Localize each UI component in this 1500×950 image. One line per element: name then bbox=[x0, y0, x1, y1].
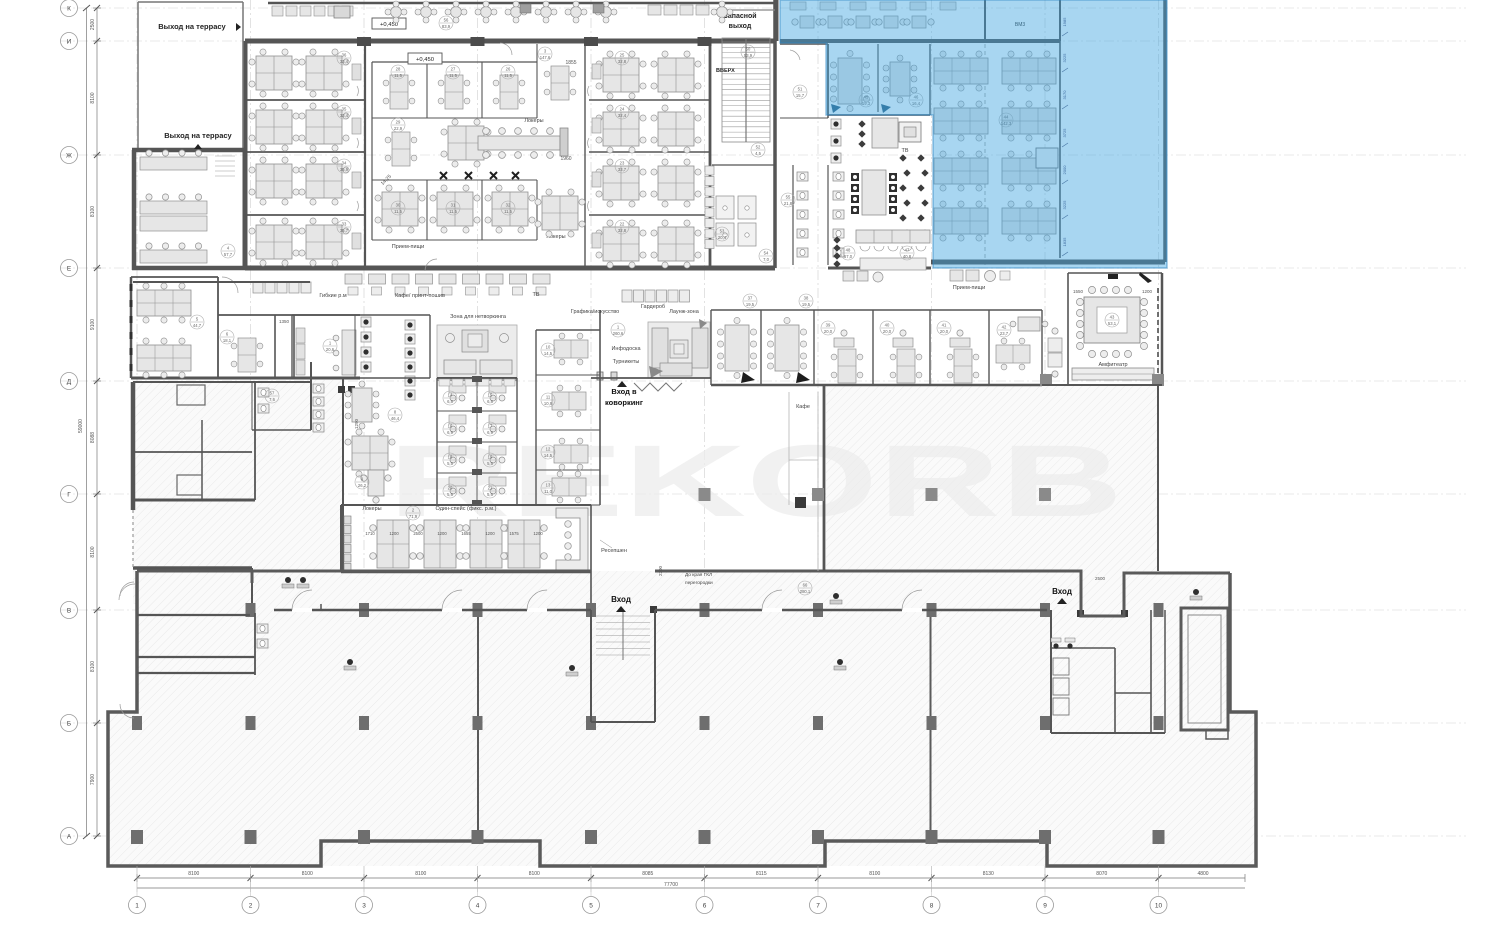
svg-text:8100: 8100 bbox=[869, 871, 880, 877]
svg-text:1550: 1550 bbox=[1073, 289, 1084, 294]
svg-text:1200: 1200 bbox=[389, 531, 399, 536]
svg-text:1200: 1200 bbox=[437, 531, 447, 536]
svg-text:40,8: 40,8 bbox=[903, 254, 912, 259]
svg-text:20,4: 20,4 bbox=[718, 235, 727, 240]
svg-text:22: 22 bbox=[620, 222, 625, 227]
svg-text:перегородки: перегородки bbox=[685, 581, 713, 586]
svg-text:8100: 8100 bbox=[90, 546, 96, 557]
svg-text:32,8: 32,8 bbox=[618, 59, 627, 64]
svg-text:5,6: 5,6 bbox=[487, 492, 493, 497]
svg-text:29: 29 bbox=[396, 120, 401, 125]
svg-text:18,1: 18,1 bbox=[223, 338, 232, 343]
svg-text:25: 25 bbox=[620, 53, 625, 58]
svg-text:Выход на террасу: Выход на террасу bbox=[158, 22, 226, 31]
svg-text:Ж: Ж bbox=[66, 153, 72, 160]
svg-text:83,9: 83,9 bbox=[442, 24, 451, 29]
svg-text:5,5: 5,5 bbox=[487, 461, 493, 466]
svg-text:К: К bbox=[67, 6, 71, 13]
svg-text:И: И bbox=[67, 39, 72, 46]
svg-text:6,9: 6,9 bbox=[447, 430, 453, 435]
svg-text:Амфитеатр: Амфитеатр bbox=[1098, 362, 1127, 368]
svg-text:57: 57 bbox=[270, 391, 275, 396]
svg-text:1200: 1200 bbox=[1142, 289, 1153, 294]
svg-text:28: 28 bbox=[396, 67, 401, 72]
svg-text:ВВЕРХ: ВВЕРХ bbox=[716, 68, 735, 74]
svg-text:10: 10 bbox=[1155, 903, 1163, 910]
svg-text:1855: 1855 bbox=[565, 60, 576, 66]
svg-text:Локеры: Локеры bbox=[524, 118, 543, 124]
svg-text:4800: 4800 bbox=[1197, 871, 1208, 877]
svg-text:17: 17 bbox=[488, 424, 493, 429]
svg-text:33,7: 33,7 bbox=[618, 167, 627, 172]
svg-text:5,6: 5,6 bbox=[447, 492, 453, 497]
svg-text:66: 66 bbox=[803, 583, 808, 588]
svg-text:26,2: 26,2 bbox=[358, 483, 367, 488]
svg-text:77700: 77700 bbox=[664, 882, 678, 888]
svg-text:147,6: 147,6 bbox=[540, 55, 551, 60]
svg-text:21,8: 21,8 bbox=[784, 201, 793, 206]
svg-text:2: 2 bbox=[249, 903, 253, 910]
svg-text:Прием-пищи: Прием-пищи bbox=[392, 244, 424, 250]
svg-text:Прием-пищи: Прием-пищи bbox=[953, 285, 985, 291]
svg-text:10,9: 10,9 bbox=[544, 401, 553, 406]
svg-text:67,0: 67,0 bbox=[844, 254, 853, 259]
svg-text:11,5: 11,5 bbox=[504, 209, 513, 214]
svg-text:6: 6 bbox=[703, 903, 707, 910]
svg-text:А: А bbox=[67, 834, 72, 841]
svg-text:22,9: 22,9 bbox=[394, 126, 403, 131]
svg-text:44,7: 44,7 bbox=[193, 323, 202, 328]
svg-text:Б: Б bbox=[67, 721, 71, 728]
svg-text:Кафе/ принт-пошив: Кафе/ принт-пошив bbox=[395, 293, 445, 299]
svg-text:До края ГКЛ: До края ГКЛ bbox=[685, 572, 712, 578]
svg-text:280,1: 280,1 bbox=[800, 589, 811, 594]
svg-text:Ресепшен: Ресепшен bbox=[601, 548, 627, 554]
svg-text:ТВ: ТВ bbox=[901, 148, 908, 154]
svg-text:Вход: Вход bbox=[1052, 587, 1072, 596]
svg-text:1200: 1200 bbox=[533, 531, 543, 536]
svg-text:19,5: 19,5 bbox=[802, 302, 811, 307]
svg-text:32,8: 32,8 bbox=[618, 228, 627, 233]
svg-text:16: 16 bbox=[448, 424, 453, 429]
svg-text:33,4: 33,4 bbox=[340, 59, 349, 64]
svg-text:42: 42 bbox=[1002, 325, 1007, 330]
svg-text:53: 53 bbox=[720, 229, 725, 234]
svg-text:Графика/искусство: Графика/искусство bbox=[571, 309, 619, 315]
svg-text:14,5: 14,5 bbox=[544, 453, 553, 458]
svg-text:21: 21 bbox=[488, 486, 493, 491]
svg-text:Г: Г bbox=[67, 492, 71, 499]
svg-text:20: 20 bbox=[448, 486, 453, 491]
svg-text:2500: 2500 bbox=[90, 19, 96, 30]
svg-text:Лаунж-зона: Лаунж-зона bbox=[669, 309, 699, 315]
svg-text:5,5: 5,5 bbox=[447, 461, 453, 466]
svg-text:24: 24 bbox=[620, 107, 625, 112]
svg-text:20,0: 20,0 bbox=[940, 329, 949, 334]
svg-text:5: 5 bbox=[589, 903, 593, 910]
svg-text:+0,450: +0,450 bbox=[416, 57, 434, 63]
svg-text:55: 55 bbox=[786, 195, 791, 200]
svg-text:39: 39 bbox=[826, 323, 831, 328]
svg-text:50: 50 bbox=[746, 47, 751, 52]
svg-text:53,9: 53,9 bbox=[744, 53, 753, 58]
svg-text:выход: выход bbox=[729, 23, 752, 30]
svg-text:43: 43 bbox=[1110, 315, 1115, 320]
svg-text:11,0: 11,0 bbox=[544, 489, 553, 494]
svg-text:19,5: 19,5 bbox=[746, 302, 755, 307]
svg-text:8100: 8100 bbox=[90, 661, 96, 672]
svg-text:1200: 1200 bbox=[485, 531, 495, 536]
svg-text:14: 14 bbox=[448, 393, 453, 398]
svg-text:8115: 8115 bbox=[756, 871, 767, 877]
svg-text:12: 12 bbox=[546, 447, 551, 452]
svg-text:7900: 7900 bbox=[90, 774, 96, 785]
svg-text:Локеры: Локеры bbox=[362, 506, 381, 512]
svg-text:3: 3 bbox=[362, 903, 366, 910]
svg-text:37: 37 bbox=[748, 296, 753, 301]
svg-text:59000: 59000 bbox=[78, 419, 84, 433]
svg-text:6,8: 6,8 bbox=[447, 399, 453, 404]
svg-text:8100: 8100 bbox=[188, 871, 199, 877]
svg-text:2500: 2500 bbox=[1095, 576, 1106, 581]
svg-text:33,4: 33,4 bbox=[340, 113, 349, 118]
svg-text:20,0: 20,0 bbox=[883, 329, 892, 334]
svg-text:32,4: 32,4 bbox=[618, 113, 627, 118]
svg-text:Вход в: Вход в bbox=[611, 387, 637, 396]
svg-text:56: 56 bbox=[444, 18, 449, 23]
svg-text:36: 36 bbox=[342, 53, 347, 58]
svg-text:11: 11 bbox=[546, 395, 551, 400]
svg-text:Зона для нетворкинга: Зона для нетворкинга bbox=[450, 314, 507, 320]
svg-text:Д: Д bbox=[67, 379, 72, 386]
svg-text:8: 8 bbox=[930, 903, 934, 910]
svg-text:6,9: 6,9 bbox=[487, 430, 493, 435]
svg-text:8088: 8088 bbox=[90, 432, 96, 443]
svg-text:9: 9 bbox=[1043, 903, 1047, 910]
svg-text:9100: 9100 bbox=[90, 319, 96, 330]
svg-text:51: 51 bbox=[798, 87, 803, 92]
svg-text:В: В bbox=[67, 608, 71, 615]
svg-text:8100: 8100 bbox=[415, 871, 426, 877]
svg-text:8085: 8085 bbox=[642, 871, 653, 877]
svg-text:34: 34 bbox=[342, 161, 347, 166]
svg-text:46,4: 46,4 bbox=[391, 416, 400, 421]
svg-text:11,5: 11,5 bbox=[449, 73, 458, 78]
svg-text:20,0: 20,0 bbox=[824, 329, 833, 334]
svg-text:27: 27 bbox=[451, 67, 456, 72]
svg-text:Турникеты: Турникеты bbox=[613, 359, 640, 365]
svg-text:Кафе: Кафе bbox=[796, 404, 810, 410]
svg-text:35: 35 bbox=[342, 107, 347, 112]
svg-text:10: 10 bbox=[546, 345, 551, 350]
svg-text:1960: 1960 bbox=[560, 156, 571, 162]
svg-text:53,1: 53,1 bbox=[1108, 321, 1117, 326]
svg-text:Вход: Вход bbox=[611, 595, 631, 604]
svg-text:13: 13 bbox=[546, 483, 551, 488]
svg-text:54: 54 bbox=[764, 251, 769, 256]
svg-text:15: 15 bbox=[488, 393, 493, 398]
svg-text:23: 23 bbox=[620, 161, 625, 166]
svg-text:8100: 8100 bbox=[90, 206, 96, 217]
svg-text:23,7: 23,7 bbox=[1000, 331, 1009, 336]
svg-text:30: 30 bbox=[396, 203, 401, 208]
svg-text:35,7: 35,7 bbox=[340, 228, 349, 233]
svg-text:48: 48 bbox=[846, 248, 851, 253]
svg-text:19: 19 bbox=[488, 455, 493, 460]
svg-text:71,9: 71,9 bbox=[409, 514, 418, 519]
svg-text:2500: 2500 bbox=[413, 531, 423, 536]
svg-text:7: 7 bbox=[816, 903, 820, 910]
svg-text:2300: 2300 bbox=[658, 565, 663, 576]
svg-text:7,6: 7,6 bbox=[269, 397, 275, 402]
svg-text:260,6: 260,6 bbox=[613, 331, 624, 336]
svg-text:26: 26 bbox=[506, 67, 511, 72]
svg-text:Инфодоска: Инфодоска bbox=[611, 346, 641, 352]
svg-text:40: 40 bbox=[885, 323, 890, 328]
svg-text:11,5: 11,5 bbox=[504, 73, 513, 78]
svg-text:4,5: 4,5 bbox=[755, 151, 761, 156]
svg-text:52: 52 bbox=[756, 145, 761, 150]
svg-text:8100: 8100 bbox=[302, 871, 313, 877]
svg-text:14,5: 14,5 bbox=[544, 351, 553, 356]
svg-text:38: 38 bbox=[804, 296, 809, 301]
svg-text:18: 18 bbox=[448, 455, 453, 460]
svg-text:11,5: 11,5 bbox=[394, 73, 403, 78]
svg-text:20,6: 20,6 bbox=[326, 347, 335, 352]
svg-text:8100: 8100 bbox=[90, 92, 96, 103]
svg-text:Гибкие р.м: Гибкие р.м bbox=[319, 293, 347, 299]
svg-text:1350: 1350 bbox=[279, 319, 290, 324]
svg-text:47: 47 bbox=[905, 248, 910, 253]
svg-text:8070: 8070 bbox=[1096, 871, 1107, 877]
svg-text:1290: 1290 bbox=[354, 418, 359, 429]
svg-text:15,7: 15,7 bbox=[796, 93, 805, 98]
svg-text:коворкинг: коворкинг bbox=[605, 398, 643, 407]
svg-text:Выход на террасу: Выход на террасу bbox=[164, 131, 232, 140]
svg-text:Е: Е bbox=[67, 266, 72, 273]
svg-text:33: 33 bbox=[342, 222, 347, 227]
svg-text:8130: 8130 bbox=[983, 871, 994, 877]
svg-text:35,9: 35,9 bbox=[340, 167, 349, 172]
svg-text:11,5: 11,5 bbox=[394, 209, 403, 214]
svg-text:8100: 8100 bbox=[529, 871, 540, 877]
svg-text:Один-спейс (фикс. р.м.): Один-спейс (фикс. р.м.) bbox=[436, 505, 497, 512]
svg-text:1: 1 bbox=[135, 903, 139, 910]
svg-text:1575: 1575 bbox=[509, 531, 519, 536]
svg-text:7,0: 7,0 bbox=[763, 257, 769, 262]
svg-text:1710: 1710 bbox=[365, 531, 375, 536]
svg-text:31: 31 bbox=[451, 203, 456, 208]
svg-text:57,7: 57,7 bbox=[224, 252, 233, 257]
svg-text:1655: 1655 bbox=[461, 531, 471, 536]
svg-text:4: 4 bbox=[476, 903, 480, 910]
svg-text:32: 32 bbox=[506, 203, 511, 208]
svg-text:11,5: 11,5 bbox=[449, 209, 458, 214]
svg-text:Гардероб: Гардероб bbox=[641, 304, 665, 310]
svg-text:41: 41 bbox=[942, 323, 947, 328]
svg-text:6,8: 6,8 bbox=[487, 399, 493, 404]
svg-text:ТВ: ТВ bbox=[532, 292, 539, 298]
